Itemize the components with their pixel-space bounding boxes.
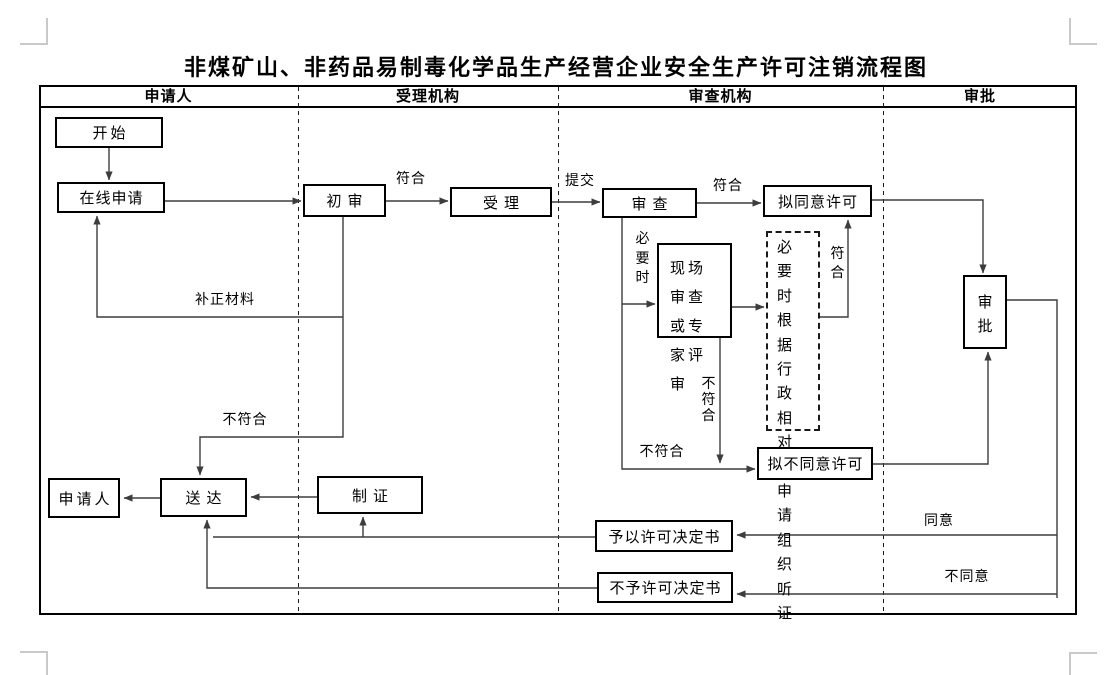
node-make-certificate: 制证 [317, 476, 423, 514]
node-deliver: 送达 [160, 478, 247, 517]
edge-label-supplement-materials: 补正材料 [190, 289, 260, 309]
edge-label-agree: 同意 [920, 510, 958, 530]
node-propose-disapprove: 拟不同意许可 [757, 447, 873, 480]
edge-disapprove-to-approval [873, 352, 988, 464]
node-applicant: 申请人 [48, 478, 120, 518]
node-accept: 受理 [450, 187, 552, 217]
node-grant-decision: 予以许可决定书 [595, 520, 733, 552]
node-hearing: 必要时根据行政相对人申请组织听证 [766, 231, 820, 431]
edge-label-not-conform-initial: 不符合 [220, 409, 270, 429]
edge-label-disagree: 不同意 [940, 566, 994, 586]
node-examine: 审查 [602, 188, 697, 218]
node-initial-review: 初审 [303, 184, 386, 217]
edge-approve-lic-to-approval [872, 200, 983, 273]
edge-label-submit: 提交 [563, 170, 597, 190]
edge-label-not-conform-onsite: 不符合 [700, 376, 717, 424]
edge-approval-vertical [1007, 300, 1057, 598]
edge-initial-notconform-to-deliver [200, 217, 343, 475]
node-online-application: 在线申请 [57, 182, 165, 213]
node-propose-approve: 拟同意许可 [763, 185, 872, 217]
edge-label-conform-hearing: 符合 [829, 245, 846, 283]
node-start: 开始 [55, 117, 163, 148]
edge-label-when-necessary: 必要时 [634, 230, 651, 289]
node-onsite-review: 现场审查或专家评审 [657, 243, 732, 338]
edge-label-conform-examine: 符合 [711, 175, 745, 195]
edge-label-conform-initial: 符合 [395, 168, 427, 188]
node-deny-decision: 不予许可决定书 [597, 572, 733, 603]
edge-label-not-conform-examine: 不符合 [635, 441, 689, 461]
edge-deny-to-deliver [207, 520, 597, 588]
flowchart-canvas: 非煤矿山、非药品易制毒化学品生产经营企业安全生产许可注销流程图 申请人 受理机构… [0, 0, 1112, 675]
node-approval: 审批 [963, 275, 1007, 349]
